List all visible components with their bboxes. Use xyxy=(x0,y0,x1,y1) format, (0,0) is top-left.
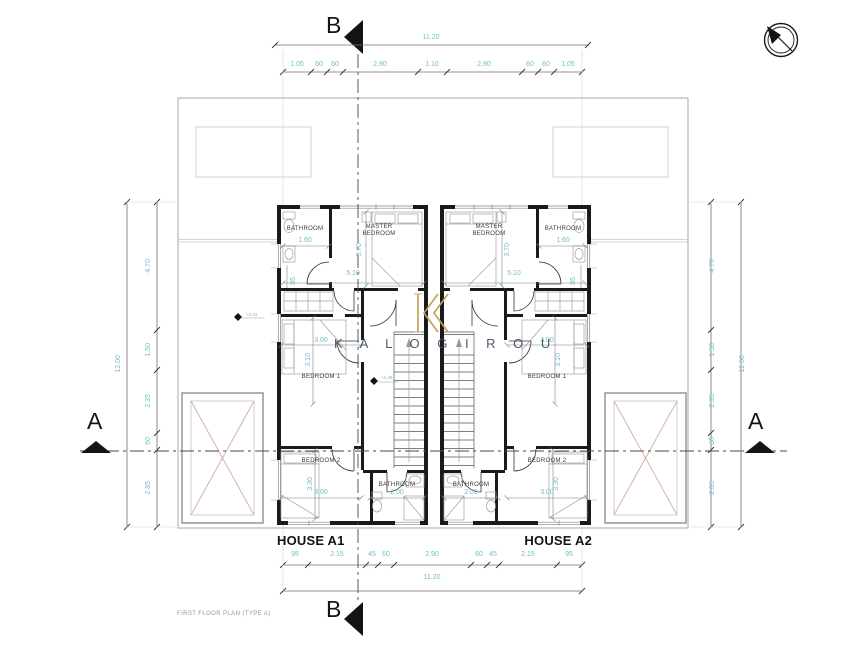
drawing-title: FIRST FLOOR PLAN (TYPE A) xyxy=(177,611,271,618)
section-marker-a-right xyxy=(745,441,775,453)
dimension-ticks xyxy=(124,42,744,594)
dim-master-depth-left: 3.70 xyxy=(356,235,364,265)
dim-bath-top-right: 1.60 xyxy=(545,237,581,245)
dim-right-seg-4: 2.85 xyxy=(709,473,717,503)
level-value-stair: +1.46 xyxy=(381,376,392,381)
room-label-master-right: MASTER BEDROOM xyxy=(459,224,519,237)
dim-band-width-left: 5.10 xyxy=(335,270,371,278)
room-label-master-right-1: MASTER xyxy=(459,224,519,231)
balcony-right xyxy=(605,393,686,523)
dim-band-width-right: 5.10 xyxy=(496,270,532,278)
dim-top-seg-3: 2.80 xyxy=(362,61,398,69)
dim-left-seg-0: 4.70 xyxy=(145,251,153,281)
dim-bottom-total: 11.20 xyxy=(409,574,455,582)
room-label-bathroom-bottom-right: BATHROOM xyxy=(441,482,501,489)
dim-bath-top-left: 1.60 xyxy=(287,237,323,245)
dim-right-seg-1: 1.50 xyxy=(709,335,717,365)
dim-wall-right: 85 xyxy=(570,266,578,296)
dim-top-seg-8: 1.05 xyxy=(550,61,586,69)
section-marker-b-top xyxy=(344,20,363,54)
dim-bed2-width-left: 3.00 xyxy=(303,489,339,497)
dim-bottom-seg-0: 95 xyxy=(277,551,313,559)
brand-watermark-text: K A L O G I R O U xyxy=(334,337,534,351)
dim-master-depth-right: 3.70 xyxy=(504,235,512,265)
room-label-bathroom-top-right: BATHROOM xyxy=(533,226,593,233)
dim-top-total: 11.20 xyxy=(408,34,454,42)
dim-left-seg-1: 1.50 xyxy=(145,335,153,365)
house-label-a2: HOUSE A2 xyxy=(512,534,592,548)
room-label-master-left-1: MASTER xyxy=(349,224,409,231)
dim-top-seg-4: 1.10 xyxy=(414,61,450,69)
dim-bottom-seg-8: 95 xyxy=(551,551,587,559)
north-arrow-icon xyxy=(765,24,798,57)
balcony-left xyxy=(182,393,263,523)
dim-bath-bottom-right: 2.00 xyxy=(453,489,489,497)
room-label-bedroom2-left: BEDROOM 2 xyxy=(291,458,351,465)
house-unit-left xyxy=(271,205,428,526)
dim-left-seg-4: 2.85 xyxy=(145,473,153,503)
room-label-master-left-2: BEDROOM xyxy=(349,231,409,238)
house-unit-right xyxy=(440,205,597,526)
dim-right-seg-3: 60 xyxy=(709,426,717,456)
section-letter-b-top: B xyxy=(326,13,341,38)
dim-bottom-seg-7: 2.15 xyxy=(510,551,546,559)
house-label-a1: HOUSE A1 xyxy=(277,534,357,548)
section-marker-a-left xyxy=(81,441,111,453)
room-label-master-right-2: BEDROOM xyxy=(459,231,519,238)
section-letter-a-left: A xyxy=(87,409,102,434)
dim-bottom-seg-3: 60 xyxy=(368,551,404,559)
witness-lines xyxy=(122,50,744,591)
dim-bed1-depth-left: 3.10 xyxy=(305,345,313,375)
dim-bottom-seg-1: 2.15 xyxy=(319,551,355,559)
dim-bottom-seg-6: 45 xyxy=(475,551,511,559)
dim-bed2-width-right: 3.00 xyxy=(529,489,565,497)
dim-right-seg-2: 2.35 xyxy=(709,386,717,416)
room-label-bedroom1-left: BEDROOM 1 xyxy=(291,374,351,381)
section-marker-b-bottom xyxy=(344,602,363,636)
room-label-bedroom1-right: BEDROOM 1 xyxy=(517,374,577,381)
dim-bottom-seg-4: 2.90 xyxy=(414,551,450,559)
dim-right-total: 12.00 xyxy=(739,349,747,379)
room-label-bedroom2-right: BEDROOM 2 xyxy=(517,458,577,465)
dim-left-total: 12.00 xyxy=(115,349,123,379)
section-line-a xyxy=(80,441,787,453)
dim-bath-bottom-left: 2.00 xyxy=(379,489,415,497)
section-letter-a-right: A xyxy=(748,409,763,434)
dim-top-seg-5: 2.80 xyxy=(466,61,502,69)
level-value-floor: +2.43 xyxy=(246,313,257,318)
dim-top-seg-2: 60 xyxy=(317,61,353,69)
room-label-master-left: MASTER BEDROOM xyxy=(349,224,409,237)
dim-left-seg-3: 60 xyxy=(145,426,153,456)
dim-left-seg-2: 2.35 xyxy=(145,386,153,416)
dim-wall-left: 85 xyxy=(290,266,298,296)
room-label-bathroom-bottom-left: BATHROOM xyxy=(367,482,427,489)
dim-right-seg-0: 4.70 xyxy=(709,251,717,281)
floor-plan-page: 11.20 1.05 60 60 2.80 1.10 2.80 60 60 1.… xyxy=(0,0,867,653)
room-label-bathroom-top-left: BATHROOM xyxy=(275,226,335,233)
section-letter-b-bottom: B xyxy=(326,597,341,622)
